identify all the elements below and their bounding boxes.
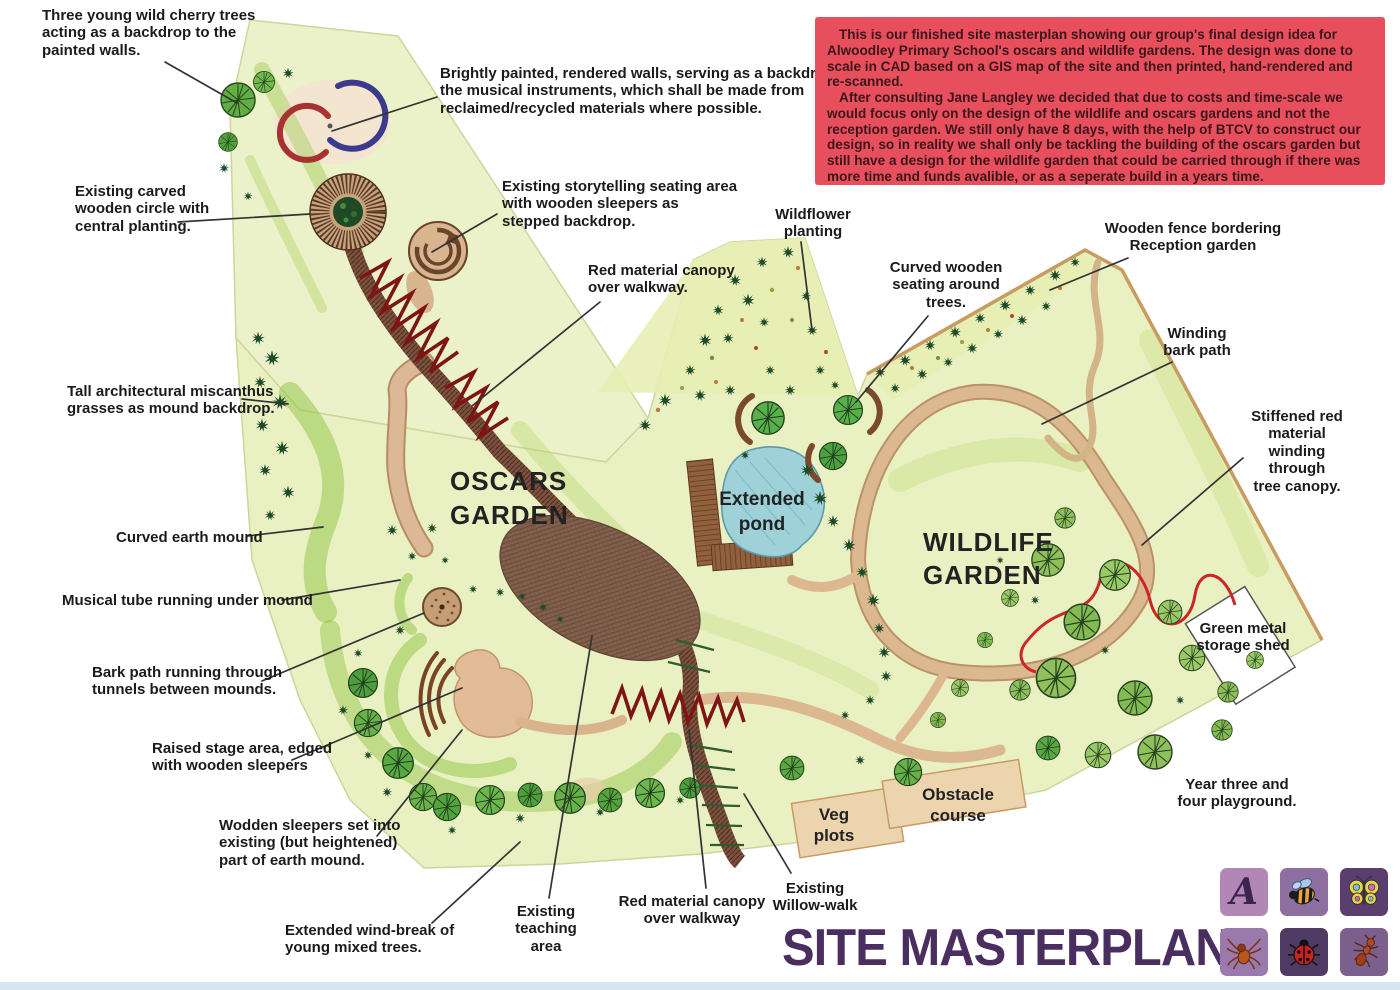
annotation-miscanthus: Tall architectural miscanthus grasses as… xyxy=(67,383,275,418)
annotation-canopy-upper: Red material canopy over walkway. xyxy=(588,262,735,297)
intro-paragraph: After consulting Jane Langley we decided… xyxy=(827,90,1371,185)
scan-edge-strip xyxy=(0,982,1400,990)
butterfly-tile xyxy=(1340,868,1388,916)
page-title: SITE MASTERPLAN xyxy=(782,918,1230,978)
annotation-fence: Wooden fence bordering Reception garden xyxy=(1105,220,1281,255)
annotation-winding-bark: Winding bark path xyxy=(1163,325,1231,360)
annotation-bark-tunnels: Bark path running through tunnels betwee… xyxy=(92,664,282,699)
ant-tile xyxy=(1340,928,1388,976)
annotation-canopy-lower: Red material canopy over walkway xyxy=(619,893,766,928)
school-logo-tile: A xyxy=(1220,868,1268,916)
label-wildlife-garden: WILDLIFE GARDEN xyxy=(923,526,1054,593)
annotation-wind-break: Extended wind-break of young mixed trees… xyxy=(285,922,454,957)
label-extended-pond: Extended pond xyxy=(719,488,805,537)
annotation-willow-walk: Existing Willow-walk xyxy=(773,880,858,915)
annotation-stiffened-red: Stiffened red material winding through t… xyxy=(1246,408,1349,495)
label-oscars-garden: OSCARS GARDEN xyxy=(450,464,569,533)
annotation-cherry-trees: Three young wild cherry trees acting as … xyxy=(42,7,255,59)
label-veg-plots: Veg plots xyxy=(814,804,855,847)
ant-icon xyxy=(1345,933,1383,971)
intro-text-box: This is our finished site masterplan sho… xyxy=(815,17,1385,185)
site-masterplan-page: Three young wild cherry trees acting as … xyxy=(0,0,1400,990)
school-logo-a-icon: A xyxy=(1230,874,1258,910)
annotation-wooden-sleepers: Wodden sleepers set into existing (but h… xyxy=(219,817,400,869)
annotation-carved-circle: Existing carved wooden circle with centr… xyxy=(75,183,209,235)
annotation-raised-stage: Raised stage area, edged with wooden sle… xyxy=(152,740,332,775)
annotation-wildflower: Wildflower planting xyxy=(775,206,851,241)
annotation-earth-mound: Curved earth mound xyxy=(116,529,263,546)
label-obstacle-course: Obstacle course xyxy=(922,784,994,827)
intro-paragraph: This is our finished site masterplan sho… xyxy=(827,27,1371,90)
annotation-curved-seating: Curved wooden seating around trees. xyxy=(890,259,1003,311)
bee-tile xyxy=(1280,868,1328,916)
annotation-storage-shed: Green metal storage shed xyxy=(1196,620,1289,655)
spider-icon xyxy=(1225,933,1263,971)
butterfly-icon xyxy=(1345,873,1383,911)
annotation-playground: Year three and four playground. xyxy=(1177,776,1296,811)
minibeast-icon-tiles: A xyxy=(1220,868,1388,976)
annotation-painted-walls: Brightly painted, rendered walls, servin… xyxy=(440,65,853,117)
spider-tile xyxy=(1220,928,1268,976)
annotation-storytelling: Existing storytelling seating area with … xyxy=(502,178,737,230)
annotation-musical-tube: Musical tube running under mound xyxy=(62,592,313,609)
bee-icon xyxy=(1285,873,1323,911)
annotation-teaching-area: Existing teaching area xyxy=(515,903,577,955)
ladybird-icon xyxy=(1285,933,1323,971)
ladybird-tile xyxy=(1280,928,1328,976)
